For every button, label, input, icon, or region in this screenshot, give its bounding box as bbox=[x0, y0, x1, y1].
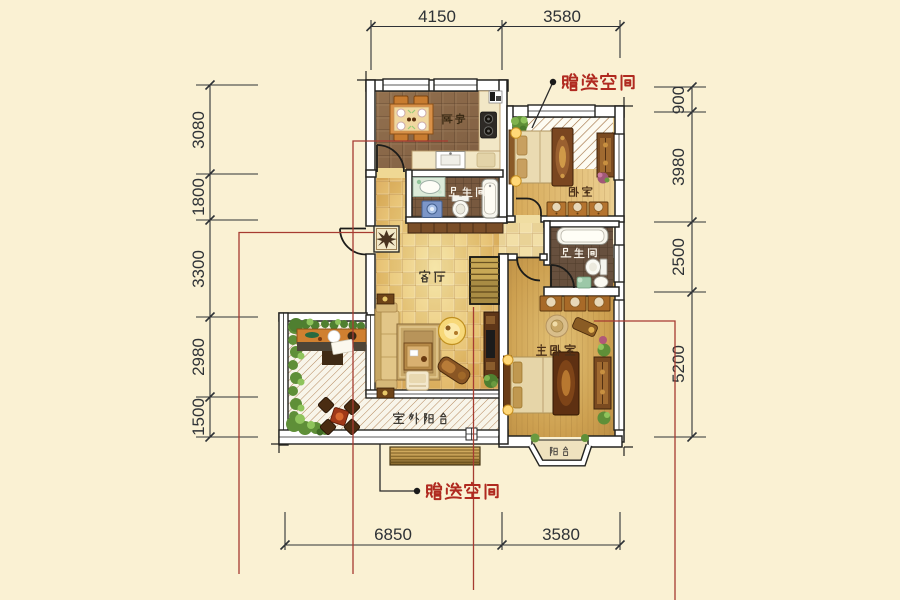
svg-text:900: 900 bbox=[669, 86, 688, 114]
svg-text:3080: 3080 bbox=[189, 111, 208, 149]
svg-text:1500: 1500 bbox=[189, 398, 208, 436]
svg-text:3580: 3580 bbox=[542, 525, 580, 544]
svg-text:1800: 1800 bbox=[189, 178, 208, 216]
svg-text:2500: 2500 bbox=[669, 238, 688, 276]
svg-text:3580: 3580 bbox=[543, 7, 581, 26]
svg-text:3300: 3300 bbox=[189, 250, 208, 288]
svg-text:4150: 4150 bbox=[418, 7, 456, 26]
svg-text:3980: 3980 bbox=[669, 148, 688, 186]
svg-text:5200: 5200 bbox=[669, 345, 688, 383]
svg-text:6850: 6850 bbox=[374, 525, 412, 544]
svg-text:2980: 2980 bbox=[189, 338, 208, 376]
